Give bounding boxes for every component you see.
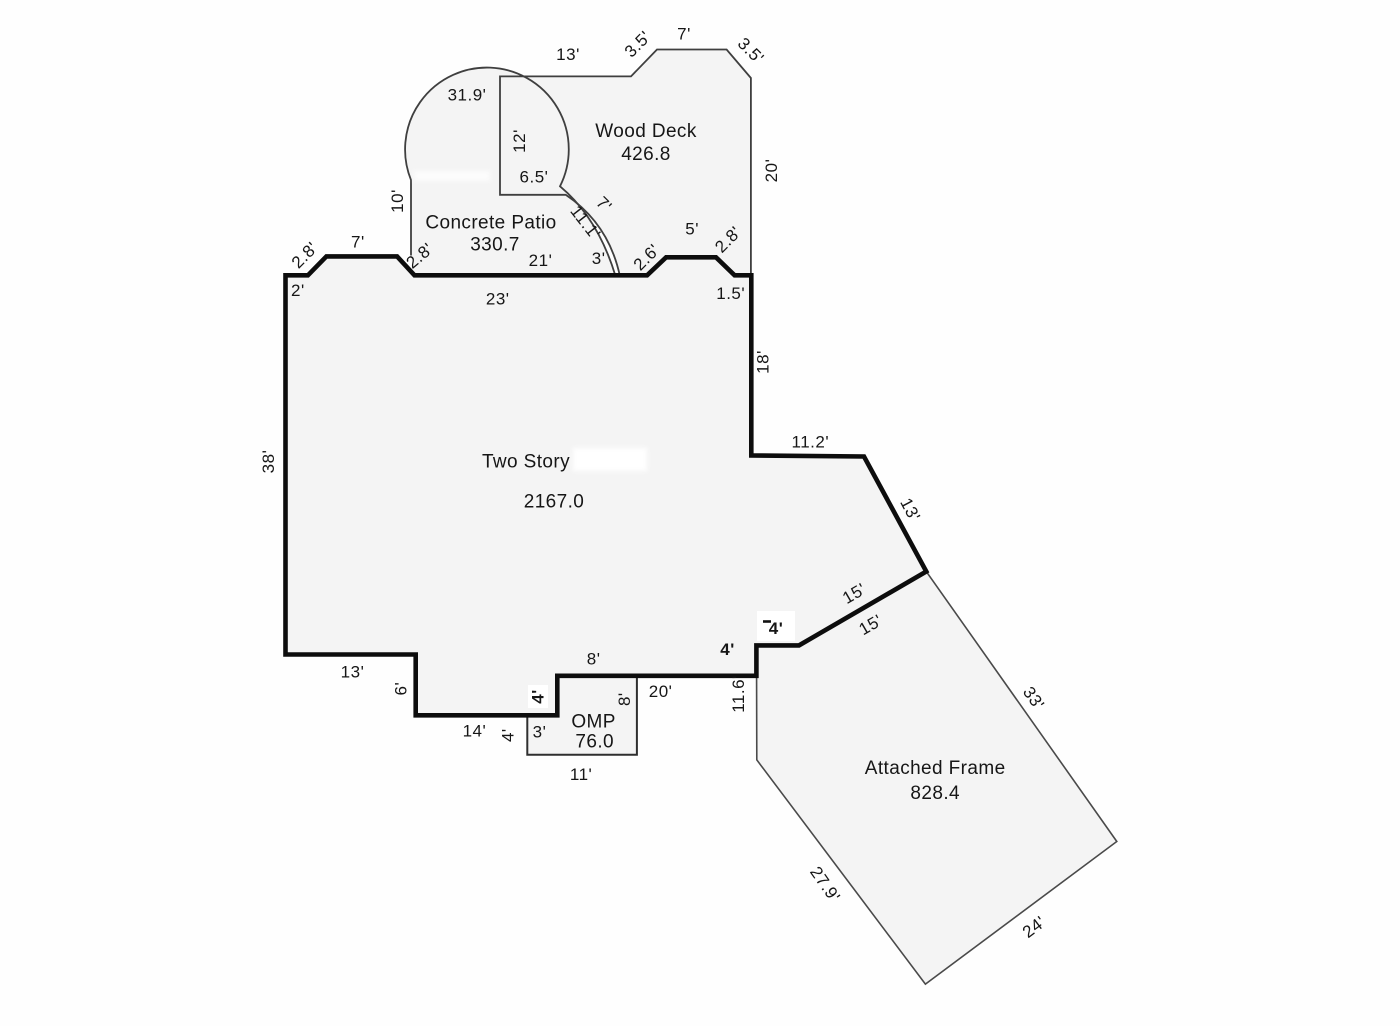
svg-text:426.8: 426.8 <box>621 144 671 165</box>
svg-text:2': 2' <box>291 281 305 300</box>
svg-text:6.5': 6.5' <box>520 167 549 186</box>
svg-text:Concrete Patio: Concrete Patio <box>425 213 556 234</box>
svg-text:11': 11' <box>570 765 592 784</box>
svg-text:13': 13' <box>341 663 365 682</box>
svg-text:31.9': 31.9' <box>448 85 487 104</box>
svg-text:3': 3' <box>533 722 547 741</box>
svg-text:330.7: 330.7 <box>470 235 520 256</box>
svg-text:828.4: 828.4 <box>910 783 960 804</box>
svg-text:Two Story: Two Story <box>482 452 570 473</box>
svg-text:7': 7' <box>351 232 365 251</box>
svg-text:7': 7' <box>677 24 691 43</box>
svg-text:38': 38' <box>259 450 278 474</box>
svg-text:18': 18' <box>753 350 772 374</box>
svg-text:8': 8' <box>615 692 634 706</box>
svg-text:Wood Deck: Wood Deck <box>595 121 697 142</box>
svg-text:21': 21' <box>529 251 553 270</box>
svg-text:OMP: OMP <box>571 711 615 732</box>
svg-text:12': 12' <box>510 129 529 153</box>
svg-text:11.6': 11.6' <box>729 675 748 713</box>
svg-text:23': 23' <box>486 290 510 309</box>
svg-text:10': 10' <box>388 189 407 213</box>
svg-text:2167.0: 2167.0 <box>524 492 585 513</box>
svg-text:Attached Frame: Attached Frame <box>865 758 1006 779</box>
svg-text:20': 20' <box>649 682 673 701</box>
svg-text:14': 14' <box>463 722 487 741</box>
svg-text:76.0: 76.0 <box>575 732 614 753</box>
svg-text:4': 4' <box>720 640 735 659</box>
svg-text:4': 4' <box>769 619 784 638</box>
svg-text:4': 4' <box>528 689 547 704</box>
svg-text:1.5': 1.5' <box>716 284 745 303</box>
svg-text:5': 5' <box>685 220 699 239</box>
svg-text:3': 3' <box>592 249 606 268</box>
svg-text:8': 8' <box>587 650 601 669</box>
svg-text:11.2': 11.2' <box>792 432 830 451</box>
svg-text:20': 20' <box>762 159 781 183</box>
svg-text:4': 4' <box>499 728 518 742</box>
svg-text:13': 13' <box>556 45 580 64</box>
svg-text:6': 6' <box>392 682 411 696</box>
